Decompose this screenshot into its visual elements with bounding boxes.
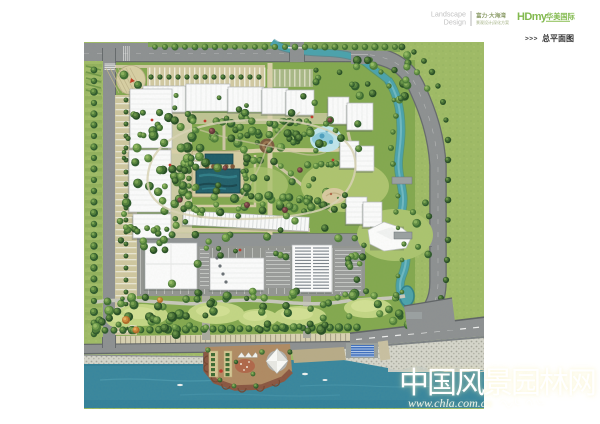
svg-text:华美国际: 华美国际 xyxy=(546,12,576,21)
svg-text:总平面图: 总平面图 xyxy=(542,33,574,43)
svg-text:景观设计|深化方案: 景观设计|深化方案 xyxy=(476,19,509,25)
svg-text:富力·大海湾: 富力·大海湾 xyxy=(476,12,506,20)
svg-text:Design: Design xyxy=(444,18,466,27)
svg-text:HDmy: HDmy xyxy=(517,11,548,23)
svg-text:>>>: >>> xyxy=(525,36,538,43)
svg-text:www.chla.com.cn: www.chla.com.cn xyxy=(408,396,492,410)
